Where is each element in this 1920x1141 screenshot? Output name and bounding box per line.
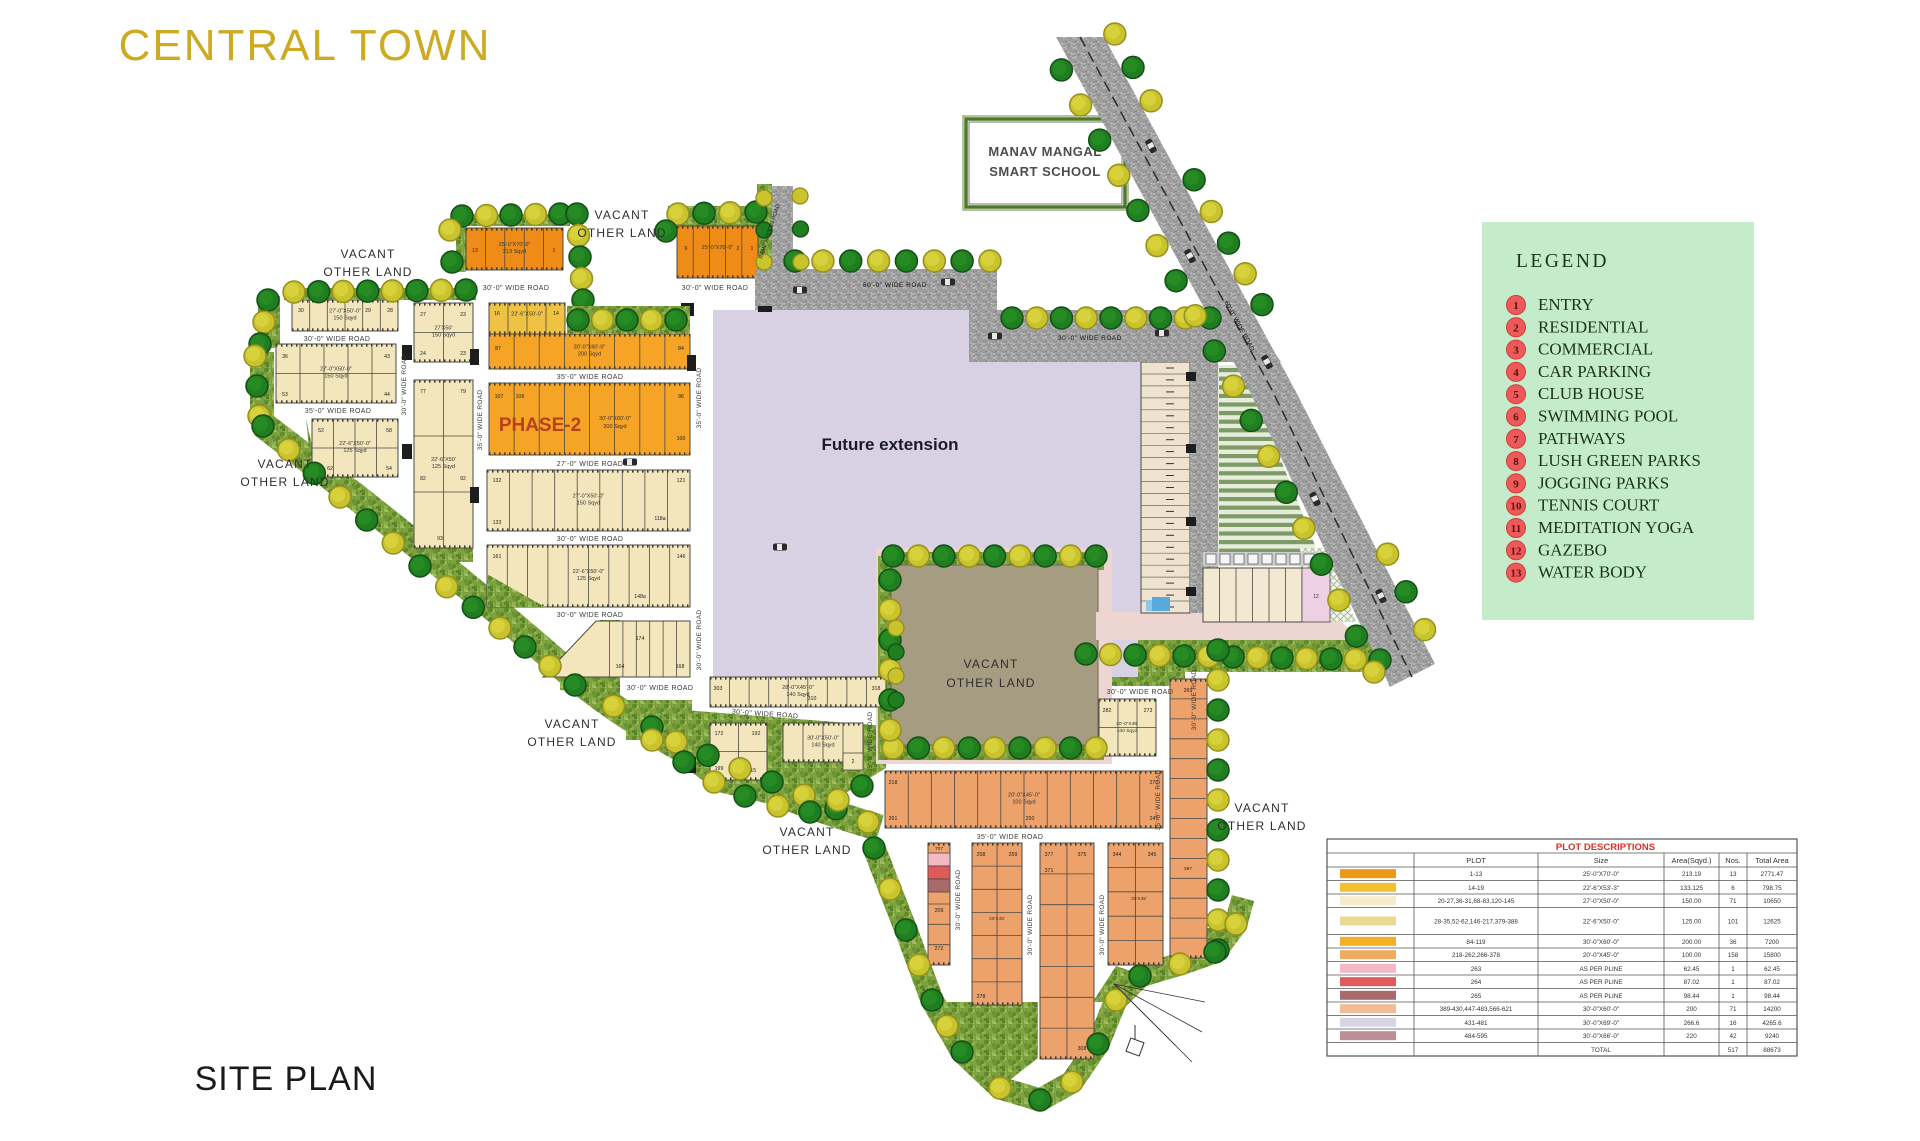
svg-text:148a: 148a: [634, 594, 646, 600]
svg-text:LEGEND: LEGEND: [1516, 251, 1609, 272]
svg-text:JOGGING PARKS: JOGGING PARKS: [1538, 473, 1669, 492]
svg-text:2771.47: 2771.47: [1761, 871, 1784, 878]
svg-text:ENTRY: ENTRY: [1538, 295, 1594, 314]
svg-text:3: 3: [1513, 345, 1519, 357]
svg-text:266.6: 266.6: [1684, 1020, 1700, 1027]
svg-text:100 Sqyd: 100 Sqyd: [1012, 800, 1035, 806]
svg-text:265: 265: [1471, 993, 1482, 1000]
svg-text:Total Area: Total Area: [1755, 856, 1789, 865]
svg-text:PLOT: PLOT: [1466, 856, 1486, 865]
svg-text:98.44: 98.44: [1684, 993, 1700, 1000]
svg-text:OTHER LAND: OTHER LAND: [946, 676, 1035, 690]
svg-text:261: 261: [889, 816, 898, 822]
svg-text:52: 52: [318, 428, 324, 434]
svg-text:16: 16: [494, 311, 500, 317]
svg-text:133: 133: [493, 520, 502, 526]
svg-text:30'-0"X60'-0": 30'-0"X60'-0": [599, 416, 631, 422]
svg-text:1: 1: [751, 246, 754, 252]
svg-text:98.44: 98.44: [1764, 993, 1780, 1000]
svg-text:MANAV MANGAL: MANAV MANGAL: [988, 144, 1101, 159]
svg-text:PHASE-2: PHASE-2: [499, 415, 581, 436]
svg-text:200 Sqyd: 200 Sqyd: [578, 352, 601, 358]
svg-text:258: 258: [977, 852, 986, 858]
svg-text:VACANT: VACANT: [964, 657, 1019, 671]
svg-text:9240: 9240: [1765, 1033, 1780, 1040]
svg-text:Size: Size: [1594, 856, 1609, 865]
svg-text:20-27,36-31,68-83,120-145: 20-27,36-31,68-83,120-145: [1438, 898, 1515, 905]
svg-text:COMMERCIAL: COMMERCIAL: [1538, 340, 1653, 359]
svg-text:8: 8: [1513, 456, 1519, 468]
svg-text:SITE PLAN: SITE PLAN: [195, 1060, 378, 1098]
svg-text:MEDITATION YOGA: MEDITATION YOGA: [1538, 518, 1695, 537]
svg-text:20'-0"X45': 20'-0"X45': [1116, 721, 1138, 727]
svg-text:96: 96: [678, 394, 684, 400]
svg-text:158: 158: [1728, 952, 1739, 959]
svg-text:SMART SCHOOL: SMART SCHOOL: [989, 164, 1100, 179]
svg-text:28-35,52-62,146-217,379-388: 28-35,52-62,146-217,379-388: [1434, 919, 1518, 926]
svg-text:25'-0"X70'-0": 25'-0"X70'-0": [499, 242, 531, 248]
svg-text:54: 54: [386, 466, 392, 472]
svg-text:87: 87: [495, 346, 501, 352]
svg-text:24: 24: [420, 351, 426, 357]
svg-text:125 Sqyd: 125 Sqyd: [577, 576, 600, 582]
svg-text:79: 79: [460, 389, 466, 395]
svg-text:4265.6: 4265.6: [1762, 1020, 1782, 1027]
svg-text:93: 93: [437, 536, 443, 542]
svg-text:27'X50': 27'X50': [434, 326, 452, 332]
svg-text:88673: 88673: [1763, 1047, 1781, 1054]
svg-text:1: 1: [1731, 993, 1735, 1000]
svg-text:30'-0"X60'-0": 30'-0"X60'-0": [1583, 1006, 1619, 1013]
svg-text:1: 1: [1513, 300, 1519, 312]
svg-text:87.02: 87.02: [1764, 979, 1780, 986]
svg-text:30'-0" WIDE ROAD: 30'-0" WIDE ROAD: [696, 610, 703, 671]
svg-text:146: 146: [677, 554, 686, 560]
svg-text:30'-0" WIDE ROAD: 30'-0" WIDE ROAD: [304, 336, 371, 343]
svg-text:263: 263: [1471, 966, 1482, 973]
svg-text:62: 62: [327, 466, 333, 472]
svg-text:282: 282: [1103, 708, 1112, 714]
svg-text:CAR PARKING: CAR PARKING: [1538, 362, 1651, 381]
svg-text:7: 7: [1513, 434, 1519, 446]
svg-text:23: 23: [460, 351, 466, 357]
svg-text:2: 2: [737, 246, 740, 252]
svg-text:30'-0"X50'-0": 30'-0"X50'-0": [807, 736, 839, 742]
svg-text:344: 344: [1113, 852, 1122, 858]
svg-text:12625: 12625: [1763, 919, 1781, 926]
svg-text:22'-6"X50': 22'-6"X50': [431, 457, 456, 463]
svg-text:62.45: 62.45: [1684, 966, 1700, 973]
svg-text:44: 44: [384, 392, 390, 398]
svg-text:71: 71: [1729, 898, 1737, 905]
svg-text:PLOT DESCRIPTIONS: PLOT DESCRIPTIONS: [1556, 842, 1655, 853]
svg-text:20'-0"X45'-0": 20'-0"X45'-0": [1008, 793, 1040, 799]
svg-text:35'-0" WIDE ROAD: 35'-0" WIDE ROAD: [477, 390, 484, 451]
svg-text:5: 5: [1513, 389, 1519, 401]
svg-text:AS PER PLINE: AS PER PLINE: [1579, 993, 1622, 1000]
svg-text:CENTRAL TOWN: CENTRAL TOWN: [119, 21, 492, 70]
svg-text:25'-0"X70'-0": 25'-0"X70'-0": [702, 245, 734, 251]
svg-text:174: 174: [636, 636, 645, 642]
svg-text:150 Sqyd: 150 Sqyd: [324, 374, 347, 380]
svg-text:13: 13: [1511, 568, 1523, 580]
svg-text:Future extension: Future extension: [822, 435, 959, 454]
svg-text:220: 220: [1686, 1033, 1697, 1040]
svg-text:VACANT: VACANT: [258, 457, 313, 471]
svg-text:VACANT: VACANT: [780, 825, 835, 839]
svg-text:35'-0" WIDE ROAD: 35'-0" WIDE ROAD: [867, 712, 874, 773]
svg-text:371: 371: [1045, 868, 1054, 874]
svg-text:OTHER LAND: OTHER LAND: [240, 475, 329, 489]
svg-text:1: 1: [1731, 966, 1735, 973]
svg-text:28'-0"X45'-0": 28'-0"X45'-0": [782, 685, 814, 691]
svg-text:29: 29: [365, 308, 371, 314]
svg-text:303: 303: [714, 686, 723, 692]
svg-text:22'-6"X53'-3": 22'-6"X53'-3": [1583, 885, 1619, 892]
svg-text:30: 30: [298, 308, 304, 314]
svg-text:272: 272: [935, 946, 944, 952]
svg-text:30'-0" WIDE ROAD: 30'-0" WIDE ROAD: [557, 536, 624, 543]
svg-text:30'-0"X60'-0": 30'-0"X60'-0": [574, 345, 606, 351]
svg-text:CLUB HOUSE: CLUB HOUSE: [1538, 384, 1644, 403]
svg-text:192: 192: [752, 731, 761, 737]
svg-text:6: 6: [685, 246, 688, 252]
svg-text:VACANT: VACANT: [341, 247, 396, 261]
svg-text:28: 28: [387, 308, 393, 314]
svg-text:264: 264: [1471, 979, 1482, 986]
svg-text:22'-6"X50'-0": 22'-6"X50'-0": [573, 569, 605, 575]
svg-text:345: 345: [1148, 852, 1157, 858]
svg-text:OTHER LAND: OTHER LAND: [577, 226, 666, 240]
svg-text:RESIDENTIAL: RESIDENTIAL: [1538, 317, 1648, 336]
svg-text:43: 43: [384, 354, 390, 360]
svg-text:161: 161: [493, 554, 502, 560]
svg-text:125 Sqyd: 125 Sqyd: [432, 464, 455, 470]
svg-text:100: 100: [677, 436, 686, 442]
svg-text:92: 92: [460, 476, 466, 482]
svg-text:SWIMMING POOL: SWIMMING POOL: [1538, 407, 1678, 426]
svg-text:1: 1: [1731, 979, 1735, 986]
svg-text:250: 250: [1026, 816, 1035, 822]
svg-text:125.00: 125.00: [1682, 919, 1702, 926]
svg-text:1: 1: [553, 248, 556, 254]
svg-text:308: 308: [1078, 1046, 1087, 1052]
svg-text:259: 259: [1009, 852, 1018, 858]
svg-text:30'-0" WIDE ROAD: 30'-0" WIDE ROAD: [627, 685, 694, 692]
svg-text:2: 2: [1513, 322, 1519, 334]
svg-text:200 Sqyd: 200 Sqyd: [603, 424, 626, 430]
svg-text:10: 10: [1511, 501, 1523, 513]
svg-text:30'-0"X69'-0": 30'-0"X69'-0": [1583, 1020, 1619, 1027]
svg-text:22'-6"X50'-0": 22'-6"X50'-0": [339, 441, 371, 447]
svg-text:25'-0"X70'-0": 25'-0"X70'-0": [1583, 871, 1619, 878]
svg-text:PATHWAYS: PATHWAYS: [1538, 429, 1626, 448]
svg-text:27'-0"X50'-0": 27'-0"X50'-0": [320, 367, 352, 373]
svg-text:14: 14: [553, 311, 559, 317]
svg-text:218-262,266-378: 218-262,266-378: [1452, 952, 1500, 959]
svg-text:30'-0" WIDE ROAD: 30'-0" WIDE ROAD: [401, 355, 408, 416]
svg-text:6: 6: [1731, 885, 1735, 892]
svg-text:6: 6: [1513, 412, 1519, 424]
svg-text:30'-0" WIDE ROAD: 30'-0" WIDE ROAD: [557, 612, 624, 619]
svg-text:318: 318: [872, 686, 881, 692]
svg-text:150 Sqyd: 150 Sqyd: [333, 316, 356, 322]
svg-text:30'-0" WIDE ROAD: 30'-0" WIDE ROAD: [1027, 895, 1034, 956]
svg-text:TENNIS COURT: TENNIS COURT: [1538, 496, 1660, 515]
svg-text:Area(Sqyd.): Area(Sqyd.): [1671, 856, 1712, 865]
svg-text:125 Sqyd: 125 Sqyd: [343, 448, 366, 454]
svg-text:132: 132: [493, 478, 502, 484]
svg-text:OTHER LAND: OTHER LAND: [1217, 819, 1306, 833]
svg-text:140 Sqyd: 140 Sqyd: [811, 743, 834, 749]
svg-text:84: 84: [678, 346, 684, 352]
svg-text:11: 11: [1511, 523, 1521, 535]
svg-text:107: 107: [495, 394, 504, 400]
svg-text:101: 101: [1728, 919, 1739, 926]
svg-text:30'-0" WIDE ROAD: 30'-0" WIDE ROAD: [955, 870, 962, 931]
svg-text:121: 121: [677, 478, 686, 484]
svg-text:375: 375: [1078, 852, 1087, 858]
svg-text:35'-0" WIDE ROAD: 35'-0" WIDE ROAD: [1155, 770, 1162, 831]
svg-text:1-13: 1-13: [1470, 871, 1483, 878]
svg-text:200: 200: [1686, 1006, 1697, 1013]
svg-text:62.45: 62.45: [1764, 966, 1780, 973]
svg-text:12: 12: [1511, 545, 1523, 557]
svg-text:707: 707: [935, 846, 943, 852]
svg-text:16: 16: [1729, 1020, 1737, 1027]
svg-text:20'X45': 20'X45': [1131, 896, 1147, 902]
svg-text:71: 71: [1729, 1006, 1737, 1013]
svg-text:150.00: 150.00: [1682, 898, 1702, 905]
svg-text:20'-0"X45'-0": 20'-0"X45'-0": [1583, 952, 1619, 959]
svg-text:10650: 10650: [1763, 898, 1781, 905]
svg-text:30'-0" WIDE ROAD: 30'-0" WIDE ROAD: [1058, 335, 1122, 342]
svg-text:23: 23: [460, 312, 466, 318]
svg-text:140 Sqyd: 140 Sqyd: [786, 692, 809, 698]
svg-text:27'-0"X50'-0": 27'-0"X50'-0": [329, 309, 361, 315]
svg-text:30'-0" WIDE ROAD: 30'-0" WIDE ROAD: [483, 285, 550, 292]
svg-text:87.02: 87.02: [1684, 979, 1700, 986]
svg-text:13: 13: [1729, 871, 1737, 878]
svg-text:12: 12: [1313, 594, 1319, 600]
svg-text:310: 310: [808, 696, 817, 702]
svg-text:27: 27: [420, 312, 426, 318]
svg-text:9: 9: [1513, 478, 1519, 490]
svg-text:209: 209: [935, 908, 944, 914]
svg-text:200.00: 200.00: [1682, 939, 1702, 946]
svg-text:278: 278: [977, 994, 986, 1000]
svg-text:100 Sqyd: 100 Sqyd: [1117, 728, 1138, 734]
svg-text:213.19: 213.19: [1682, 871, 1702, 878]
svg-text:22'-6"X50'-0": 22'-6"X50'-0": [1583, 919, 1619, 926]
svg-text:35'-0" WIDE ROAD: 35'-0" WIDE ROAD: [305, 408, 372, 415]
svg-text:2: 2: [852, 759, 855, 765]
svg-text:27'-0" WIDE ROAD: 27'-0" WIDE ROAD: [557, 461, 624, 468]
svg-text:13: 13: [472, 248, 478, 254]
svg-text:213 Sqyd: 213 Sqyd: [503, 249, 526, 255]
svg-text:36: 36: [282, 354, 288, 360]
svg-text:118a: 118a: [654, 516, 665, 522]
svg-text:172: 172: [715, 731, 724, 737]
svg-text:30'-0" WIDE ROAD: 30'-0" WIDE ROAD: [682, 285, 749, 292]
svg-text:LUSH GREEN PARKS: LUSH GREEN PARKS: [1538, 451, 1701, 470]
svg-text:397: 397: [1184, 866, 1192, 872]
svg-text:106: 106: [516, 394, 525, 400]
svg-text:27'-0"X50'-0": 27'-0"X50'-0": [1583, 898, 1619, 905]
svg-text:517: 517: [1728, 1047, 1739, 1054]
svg-text:GAZEBO: GAZEBO: [1538, 540, 1607, 559]
svg-text:84-119: 84-119: [1466, 939, 1486, 946]
svg-text:58: 58: [386, 428, 392, 434]
svg-text:60'-0" WIDE ROAD: 60'-0" WIDE ROAD: [863, 282, 927, 289]
svg-text:AS PER PLINE: AS PER PLINE: [1579, 966, 1622, 973]
svg-text:VACANT: VACANT: [595, 208, 650, 222]
svg-text:35'-0" WIDE ROAD: 35'-0" WIDE ROAD: [696, 368, 703, 429]
svg-text:218: 218: [889, 780, 898, 786]
svg-text:35'-0" WIDE ROAD: 35'-0" WIDE ROAD: [557, 374, 624, 381]
svg-text:7200: 7200: [1765, 939, 1780, 946]
svg-text:TOTAL: TOTAL: [1591, 1047, 1611, 1054]
svg-text:4: 4: [1513, 367, 1519, 379]
svg-text:VACANT: VACANT: [545, 717, 600, 731]
svg-text:30'-0" WIDE ROAD: 30'-0" WIDE ROAD: [1099, 895, 1106, 956]
svg-text:273: 273: [1144, 708, 1153, 714]
svg-text:OTHER LAND: OTHER LAND: [323, 265, 412, 279]
svg-text:OTHER LAND: OTHER LAND: [762, 843, 851, 857]
svg-text:30'-0"X60'-0": 30'-0"X60'-0": [1583, 939, 1619, 946]
svg-text:15800: 15800: [1763, 952, 1781, 959]
svg-text:30'-0"X66'-0": 30'-0"X66'-0": [1583, 1033, 1619, 1040]
svg-text:389-430,447-483,566-621: 389-430,447-483,566-621: [1440, 1006, 1513, 1013]
svg-text:484-595: 484-595: [1464, 1033, 1488, 1040]
svg-text:20'X45': 20'X45': [989, 916, 1005, 922]
svg-text:82: 82: [420, 476, 426, 482]
svg-text:Nos.: Nos.: [1725, 856, 1740, 865]
svg-text:30'-0" WIDE ROAD: 30'-0" WIDE ROAD: [1191, 670, 1198, 731]
svg-text:36: 36: [1729, 939, 1737, 946]
svg-text:WATER BODY: WATER BODY: [1538, 563, 1647, 582]
svg-text:133.125: 133.125: [1680, 885, 1703, 892]
svg-text:377: 377: [1045, 852, 1054, 858]
svg-text:27'-0"X50'-0": 27'-0"X50'-0": [573, 494, 605, 500]
svg-text:14200: 14200: [1763, 1006, 1781, 1013]
svg-text:168: 168: [676, 664, 685, 670]
svg-text:AS PER PLINE: AS PER PLINE: [1579, 979, 1622, 986]
svg-text:14-19: 14-19: [1468, 885, 1485, 892]
svg-text:150 Sqyd: 150 Sqyd: [577, 501, 600, 507]
svg-text:77: 77: [420, 389, 426, 395]
svg-text:30'-0" WIDE ROAD: 30'-0" WIDE ROAD: [1107, 689, 1174, 696]
svg-text:22'-6"X50'-0": 22'-6"X50'-0": [511, 312, 543, 318]
svg-text:VACANT: VACANT: [1235, 801, 1290, 815]
svg-text:OTHER LAND: OTHER LAND: [527, 735, 616, 749]
svg-text:42: 42: [1729, 1033, 1737, 1040]
svg-text:431-481: 431-481: [1464, 1020, 1488, 1027]
svg-text:150 Sqyd: 150 Sqyd: [432, 333, 455, 339]
svg-text:798.75: 798.75: [1762, 885, 1782, 892]
svg-text:53: 53: [282, 392, 288, 398]
svg-text:164: 164: [616, 664, 625, 670]
svg-text:35'-0" WIDE ROAD: 35'-0" WIDE ROAD: [977, 834, 1044, 841]
svg-text:100.00: 100.00: [1682, 952, 1702, 959]
